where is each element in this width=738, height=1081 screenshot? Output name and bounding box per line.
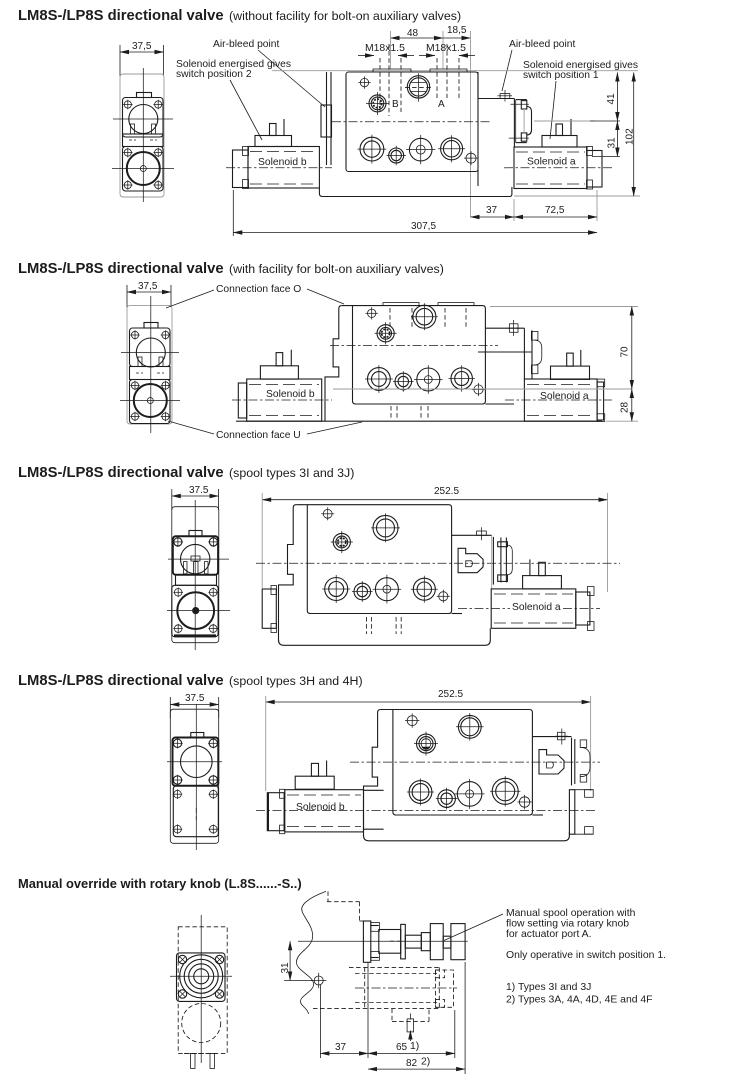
svg-text:18,5: 18,5 (447, 25, 467, 36)
svg-text:102: 102 (625, 128, 636, 145)
svg-text:(with facility for bolt-on aux: (with facility for bolt-on auxiliary val… (229, 262, 444, 276)
svg-text:Connection face U: Connection face U (216, 430, 301, 441)
svg-text:Connection face O: Connection face O (216, 284, 301, 295)
svg-text:Solenoid a: Solenoid a (540, 391, 589, 402)
svg-text:M18x1.5: M18x1.5 (365, 43, 405, 54)
svg-text:A: A (438, 99, 445, 110)
svg-text:28: 28 (620, 401, 631, 413)
svg-text:2) Types 3A, 4A, 4D, 4E and 4F: 2) Types 3A, 4A, 4D, 4E and 4F (506, 995, 653, 1006)
svg-text:37: 37 (335, 1042, 347, 1053)
svg-text:37: 37 (486, 205, 498, 216)
svg-text:70: 70 (620, 346, 631, 358)
svg-text:Solenoid a: Solenoid a (512, 602, 561, 613)
svg-text:B: B (392, 99, 399, 110)
svg-text:LM8S-/LP8S directional valve: LM8S-/LP8S directional valve (18, 8, 224, 24)
svg-text:Solenoid b: Solenoid b (258, 157, 307, 168)
svg-text:(spool types 3I and 3J): (spool types 3I and 3J) (229, 466, 354, 480)
svg-text:Manual override with rotary kn: Manual override with rotary knob (L.8S..… (18, 876, 302, 891)
svg-text:37,5: 37,5 (138, 281, 158, 292)
svg-text:37.5: 37.5 (189, 485, 209, 496)
svg-text:48: 48 (407, 28, 419, 39)
svg-text:31: 31 (607, 137, 618, 149)
svg-text:Solenoid b: Solenoid b (296, 802, 345, 813)
svg-text:LM8S-/LP8S directional valve: LM8S-/LP8S directional valve (18, 673, 224, 689)
svg-text:1) Types 3I and 3J: 1) Types 3I and 3J (506, 982, 591, 993)
svg-text:Only operative in switch posit: Only operative in switch position 1. (506, 950, 666, 961)
svg-text:(spool types 3H and 4H): (spool types 3H and 4H) (229, 674, 363, 688)
svg-text:31: 31 (280, 962, 291, 974)
svg-text:82: 82 (406, 1058, 418, 1069)
svg-text:Manual spool operation with: Manual spool operation with (506, 908, 636, 919)
svg-text:1): 1) (410, 1041, 419, 1052)
svg-text:2): 2) (421, 1057, 430, 1068)
svg-text:41: 41 (606, 93, 617, 105)
svg-text:Air-bleed point: Air-bleed point (509, 39, 576, 50)
svg-text:Solenoid a: Solenoid a (527, 157, 576, 168)
svg-text:Solenoid b: Solenoid b (266, 389, 315, 400)
svg-text:switch position 1: switch position 1 (523, 70, 599, 81)
svg-text:flow setting via rotary knob: flow setting via rotary knob (506, 919, 629, 930)
svg-text:switch position 2: switch position 2 (176, 69, 252, 80)
svg-text:(without facility for bolt-on: (without facility for bolt-on auxiliary … (229, 9, 461, 23)
svg-text:37,5: 37,5 (132, 41, 152, 52)
svg-text:Air-bleed point: Air-bleed point (213, 39, 280, 50)
svg-text:LM8S-/LP8S directional valve: LM8S-/LP8S directional valve (18, 465, 224, 481)
svg-text:72,5: 72,5 (545, 205, 565, 216)
svg-text:307,5: 307,5 (411, 221, 436, 232)
svg-text:LM8S-/LP8S directional valve: LM8S-/LP8S directional valve (18, 261, 224, 277)
svg-text:M18x1.5: M18x1.5 (426, 43, 466, 54)
svg-text:65: 65 (396, 1042, 408, 1053)
svg-text:252.5: 252.5 (434, 486, 459, 497)
svg-text:252.5: 252.5 (438, 689, 463, 700)
svg-text:37.5: 37.5 (185, 693, 205, 704)
svg-text:for actuator port A.: for actuator port A. (506, 929, 591, 940)
